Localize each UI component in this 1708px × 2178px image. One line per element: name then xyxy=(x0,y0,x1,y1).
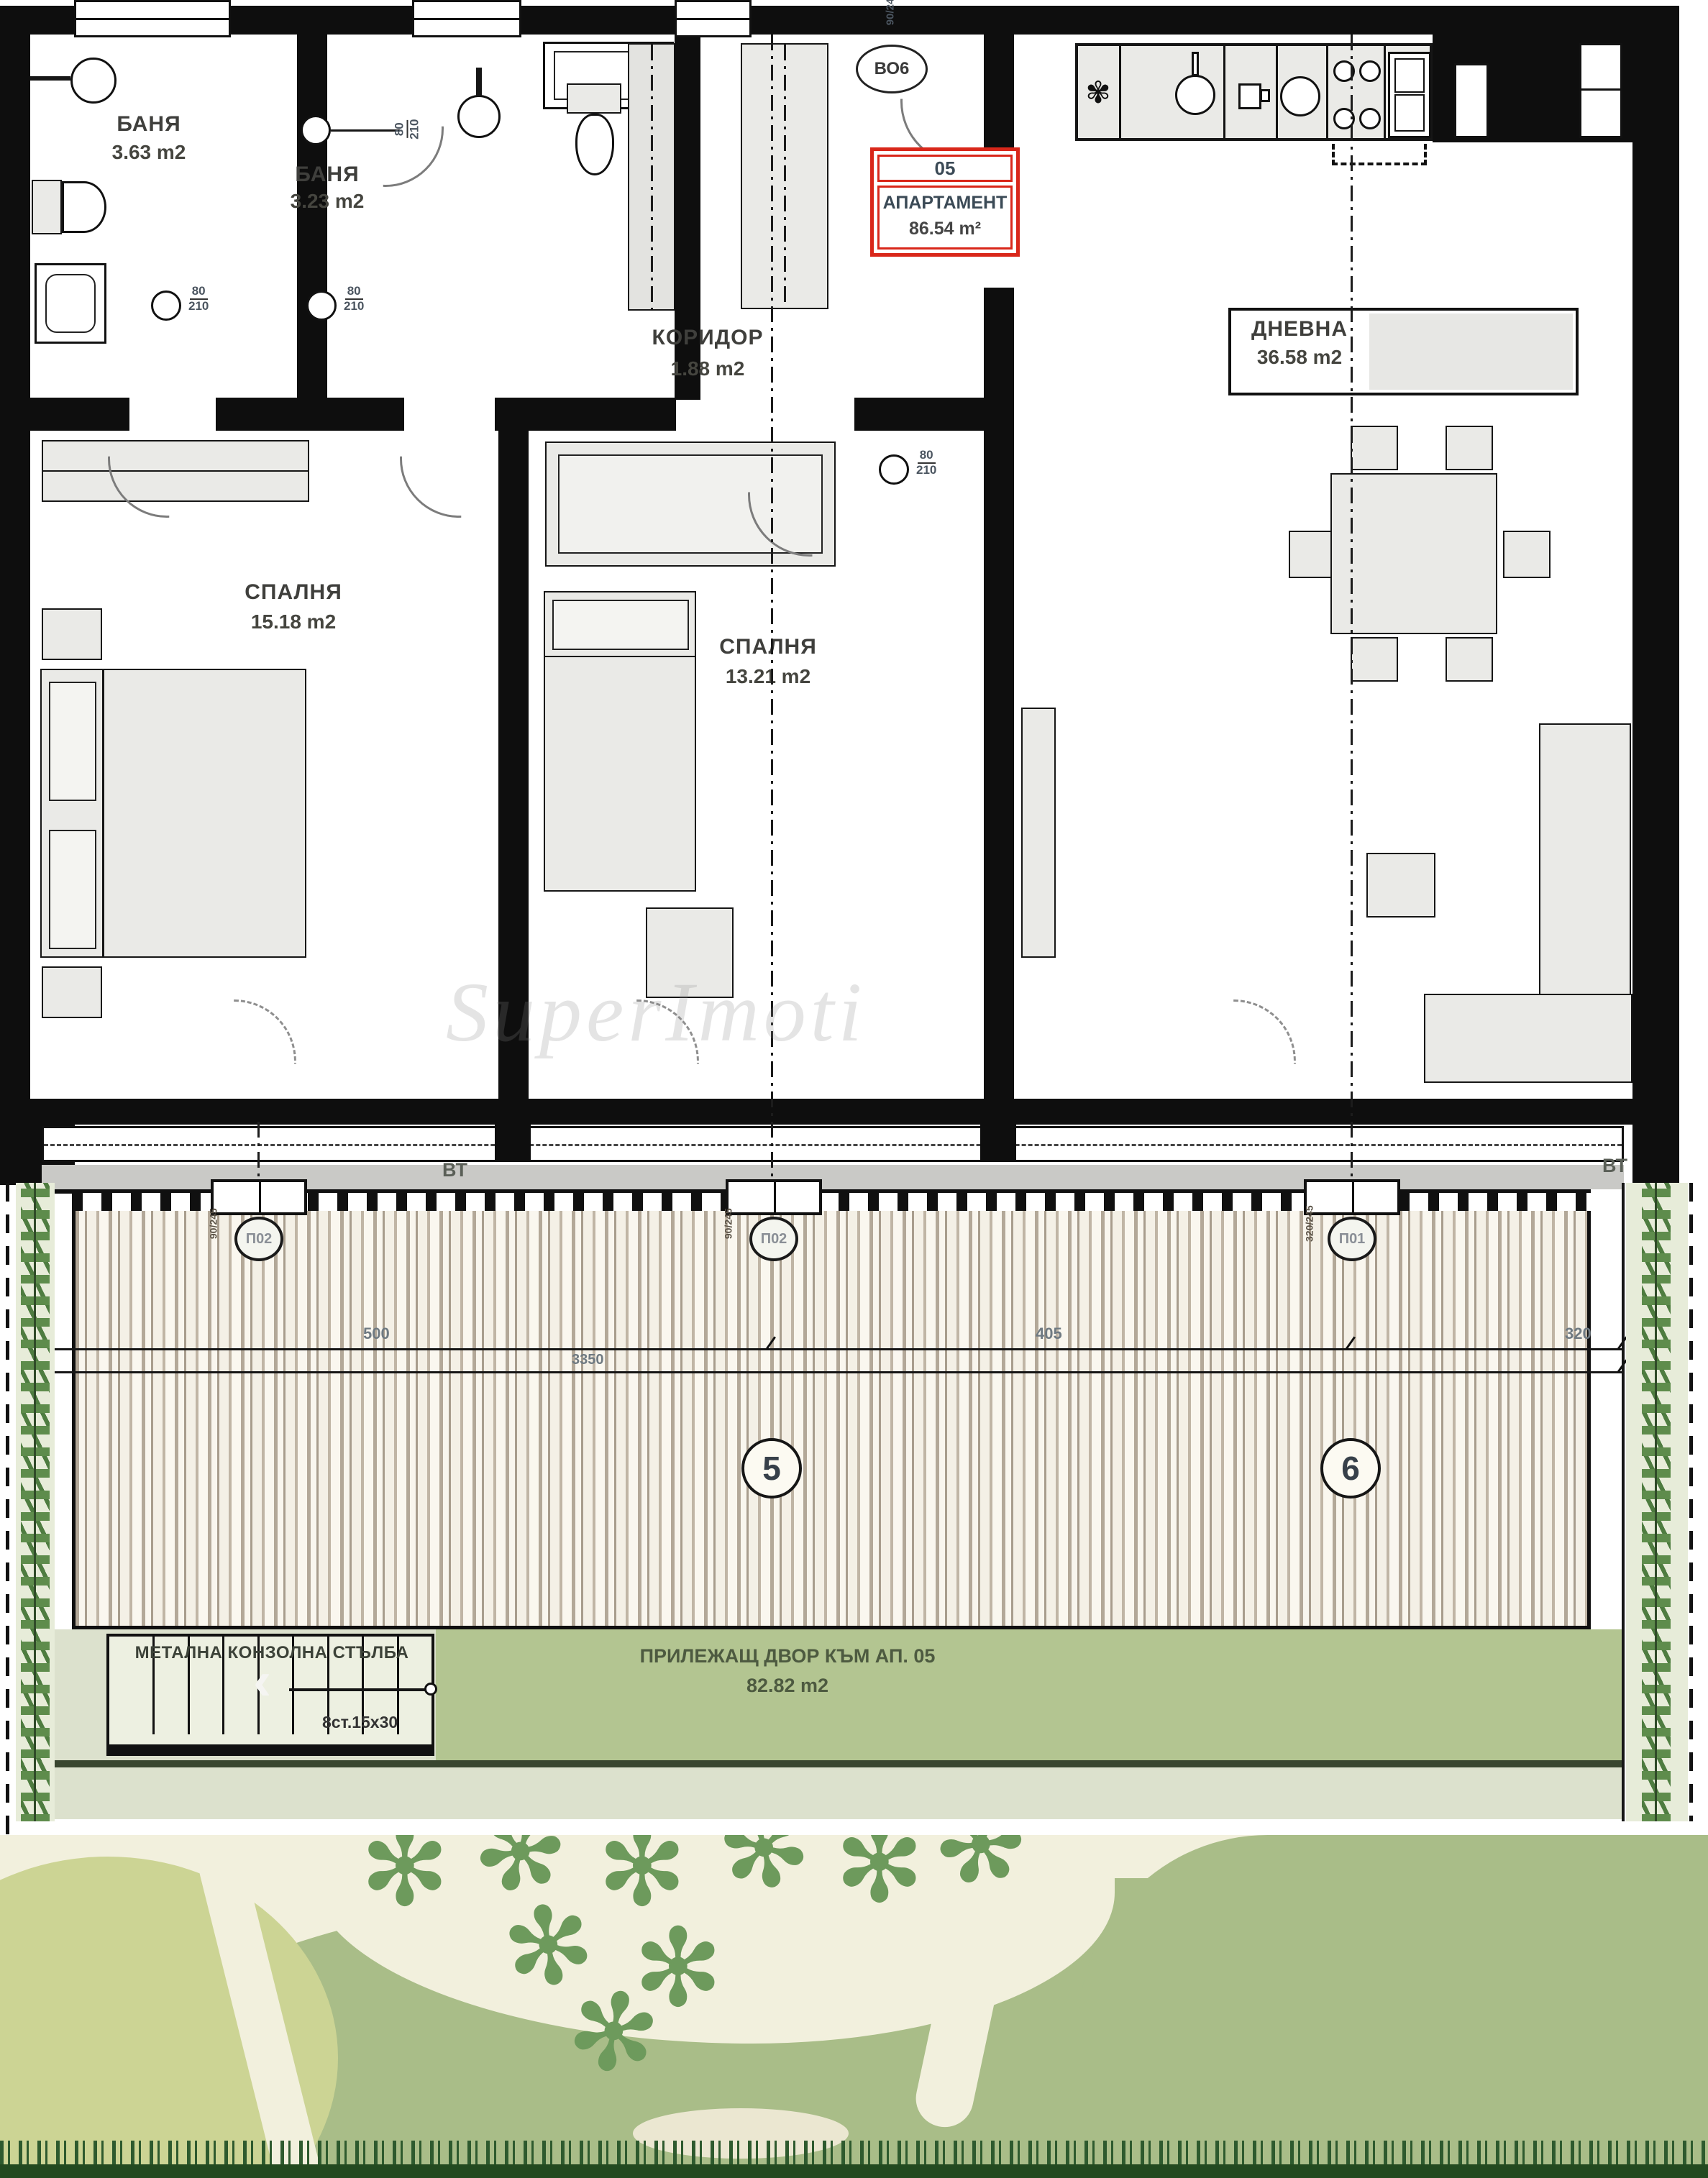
window xyxy=(74,0,231,37)
dim-value: 405 xyxy=(1036,1324,1062,1343)
bath1-toilet-bowl-icon xyxy=(62,181,106,233)
bedroom1-nightstand xyxy=(42,608,102,660)
window-type-marker: П02 xyxy=(234,1217,283,1261)
hob-knob-icon xyxy=(1175,75,1215,115)
coffee-table xyxy=(1366,853,1435,918)
shaft-window xyxy=(1579,43,1622,138)
yard-label: ПРИЛЕЖАЩ ДВОР КЪМ АП. 05 xyxy=(554,1642,1021,1670)
vt-label: ВТ xyxy=(442,1159,467,1181)
dining-chair xyxy=(1351,426,1398,470)
bedroom1-wardrobe xyxy=(42,440,309,502)
dim-value: 3350 xyxy=(572,1352,604,1368)
shaft-column xyxy=(628,43,675,311)
room-area-bedroom1: 15.18 m2 xyxy=(222,610,365,634)
bath1-washing-machine-icon xyxy=(35,263,106,344)
door-dim: 80210 xyxy=(344,285,364,313)
room-area-bath1: 3.63 m2 xyxy=(77,141,221,164)
window xyxy=(412,0,521,37)
room-label-bedroom2: СПАЛНЯ xyxy=(696,634,840,660)
vine-strip xyxy=(16,1183,55,1821)
dining-chair xyxy=(1289,531,1336,578)
metal-stair: ‹ МЕТАЛНА КОНЗОЛНА СТЪЛБА 8ст.15х30 xyxy=(106,1634,434,1747)
apartment-number: 05 xyxy=(877,155,1013,182)
bath2-sink-icon xyxy=(457,95,501,138)
dining-chair xyxy=(1351,637,1398,682)
hall-closet xyxy=(741,43,828,309)
garden: ✻ ✻ ✻ ✻ ✻ ✻ ✻ ✻ ✻ xyxy=(0,1835,1708,2178)
window xyxy=(1304,1179,1400,1215)
yard-area: 82.82 m2 xyxy=(554,1673,1021,1698)
bedroom1-bed xyxy=(40,669,306,958)
bedroom1-nightstand xyxy=(42,966,102,1018)
grass-icon: ✻ xyxy=(360,1835,450,1921)
window-dim: 90/245 xyxy=(209,1208,219,1239)
room-area-bedroom2: 13.21 m2 xyxy=(696,664,840,689)
stair-steps: 8ст.15х30 xyxy=(322,1713,398,1732)
dining-table xyxy=(1330,473,1497,634)
axis-bubble-6: 6 xyxy=(1320,1438,1381,1498)
window xyxy=(675,0,752,37)
door-dim: 80210 xyxy=(916,449,936,477)
oven-dashed-bracket xyxy=(1332,144,1427,165)
bedroom2-bed xyxy=(544,591,696,892)
watermark: SuperImoti xyxy=(446,964,1273,1057)
stair-end-circle xyxy=(424,1683,437,1696)
entry-code: ВО6 xyxy=(874,59,910,79)
door-dim: 80210 xyxy=(188,285,209,313)
room-area-living: 36.58 m2 xyxy=(1231,345,1368,370)
door-dim: 80210 xyxy=(393,119,421,139)
window-dim: 90/245 xyxy=(723,1208,734,1239)
vent-icon: ✾ xyxy=(1081,75,1115,109)
bath1-toilet-tank xyxy=(32,180,62,234)
dining-chair xyxy=(1503,531,1551,578)
vt-label: ВТ xyxy=(1602,1155,1627,1177)
grass-icon: ✻ xyxy=(834,1835,925,1918)
yard-divider xyxy=(55,1760,1622,1767)
tv-unit xyxy=(1021,708,1056,958)
terrace-deck xyxy=(72,1211,1591,1629)
window xyxy=(211,1179,307,1215)
garden-green-shape xyxy=(1079,1835,1708,2178)
shaft-window xyxy=(1454,63,1489,138)
bath1-sink-stub xyxy=(29,76,70,81)
knob-stem-icon xyxy=(1192,52,1199,76)
room-label-living: ДНЕВНА xyxy=(1231,316,1368,342)
dining-chair xyxy=(1446,637,1493,682)
entry-dim: 90/240 xyxy=(885,0,898,25)
apartment-label: АПАРТАМЕНТ xyxy=(880,192,1010,214)
room-label-bedroom1: СПАЛНЯ xyxy=(222,580,365,605)
bath2-sink-stub xyxy=(476,68,482,96)
stair-title: МЕТАЛНА КОНЗОЛНА СТЪЛБА xyxy=(114,1642,430,1664)
apartment-area: 86.54 m² xyxy=(880,218,1010,239)
floor-plan-canvas: ✾ xyxy=(0,0,1708,2178)
kitchen-counter: ✾ xyxy=(1075,43,1433,141)
window-type-marker: П01 xyxy=(1328,1217,1376,1261)
property-line xyxy=(1689,1183,1693,1821)
grass-fringe-base xyxy=(0,2164,1708,2178)
sofa-short-side xyxy=(1424,994,1632,1083)
bath2-toilet-tank xyxy=(567,83,621,114)
entry-marker: ВО6 xyxy=(856,45,928,93)
window-dim: 320/245 xyxy=(1305,1205,1315,1242)
door-marker xyxy=(151,290,181,321)
south-glazing xyxy=(42,1126,1624,1162)
room-label-bath2: БАНЯ xyxy=(255,163,399,187)
dim-line xyxy=(43,1371,1622,1373)
dim-line xyxy=(43,1348,1622,1350)
dim-value: 500 xyxy=(363,1324,390,1343)
door-marker xyxy=(306,290,337,321)
bath2-toilet-bowl-icon xyxy=(575,114,614,175)
yard-band-bottom xyxy=(55,1767,1622,1819)
window-type-marker: П02 xyxy=(749,1217,798,1261)
burner-icon xyxy=(1359,108,1381,129)
apartment-tag: 05 АПАРТАМЕНТ 86.54 m² xyxy=(870,147,1020,257)
door-marker xyxy=(301,115,331,145)
window xyxy=(726,1179,822,1215)
bath1-sink-icon xyxy=(70,58,117,104)
room-area-bath2: 3.23 m2 xyxy=(255,190,399,213)
door-marker xyxy=(879,454,909,485)
vine-strip xyxy=(1626,1183,1688,1821)
room-label-bath1: БАНЯ xyxy=(77,112,221,137)
dim-value: 320 xyxy=(1565,1324,1591,1343)
fridge-icon xyxy=(1388,52,1431,138)
sink-bowl-icon xyxy=(1280,76,1320,116)
dining-chair xyxy=(1446,426,1493,470)
burner-icon xyxy=(1359,60,1381,82)
axis-bubble-5: 5 xyxy=(741,1438,802,1498)
cup-icon xyxy=(1238,83,1261,109)
cup-handle-icon xyxy=(1260,89,1270,102)
